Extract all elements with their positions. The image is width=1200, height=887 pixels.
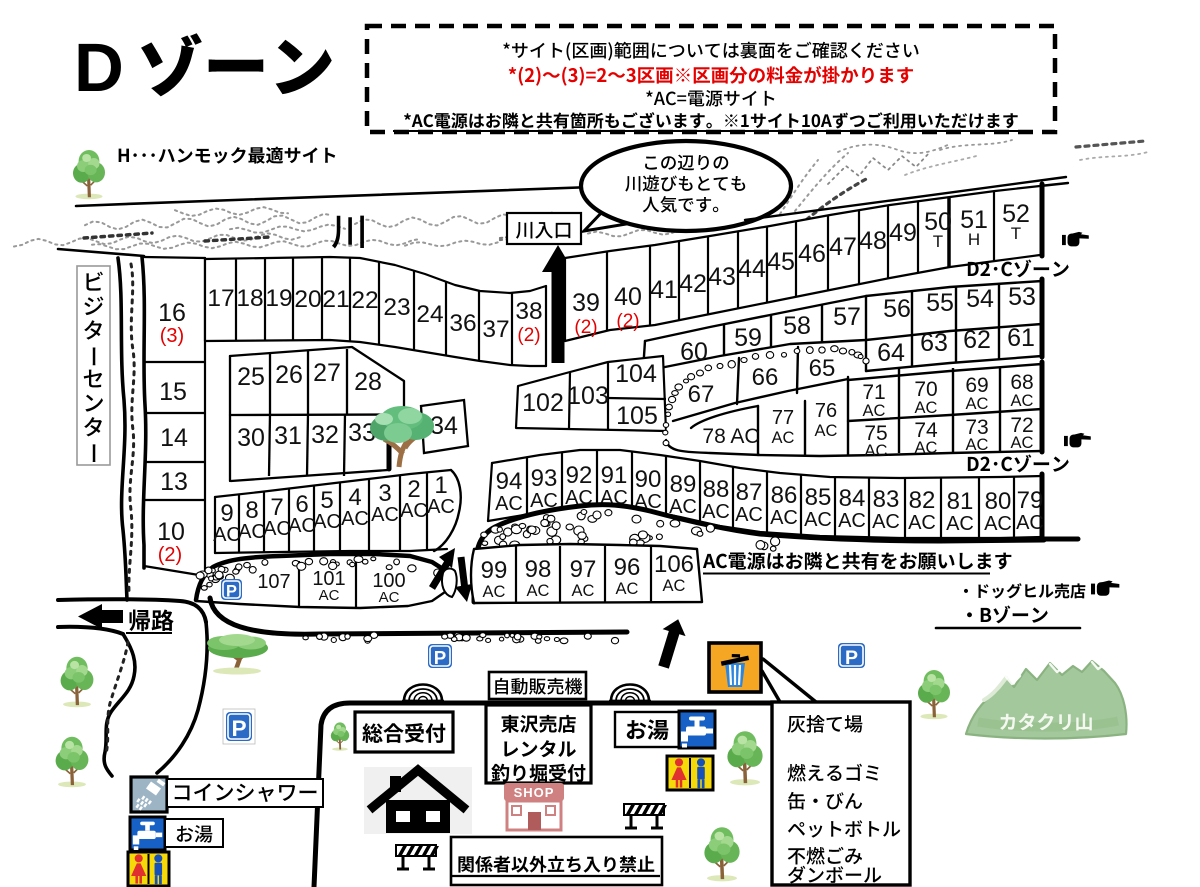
svg-text:H: H <box>968 230 980 249</box>
svg-text:86: 86 <box>771 482 798 509</box>
svg-text:1: 1 <box>434 472 447 499</box>
svg-text:AC: AC <box>319 587 340 604</box>
svg-text:62: 62 <box>963 326 991 354</box>
svg-text:15: 15 <box>159 378 187 406</box>
svg-text:66: 66 <box>752 364 779 391</box>
svg-text:19: 19 <box>265 285 292 312</box>
svg-text:SHOP: SHOP <box>514 785 555 800</box>
svg-text:25: 25 <box>237 363 265 391</box>
svg-text:AC: AC <box>838 510 866 532</box>
svg-text:AC: AC <box>1016 512 1044 534</box>
svg-text:P: P <box>231 716 246 741</box>
svg-text:21: 21 <box>322 286 349 313</box>
svg-text:70: 70 <box>914 378 937 401</box>
svg-text:64: 64 <box>877 339 905 367</box>
svg-text:58: 58 <box>783 312 811 340</box>
svg-text:107: 107 <box>257 571 290 593</box>
svg-text:(2): (2) <box>616 311 639 332</box>
svg-text:68: 68 <box>1010 371 1033 394</box>
svg-text:47: 47 <box>829 233 857 261</box>
svg-text:88: 88 <box>703 476 730 503</box>
svg-text:83: 83 <box>873 486 900 513</box>
svg-text:AC: AC <box>908 512 936 534</box>
svg-text:97: 97 <box>570 556 597 583</box>
svg-text:AC: AC <box>238 521 266 543</box>
svg-text:34: 34 <box>430 412 458 440</box>
svg-text:45: 45 <box>767 248 795 276</box>
svg-text:79: 79 <box>1017 487 1044 514</box>
svg-text:60: 60 <box>680 338 708 366</box>
svg-text:63: 63 <box>920 329 948 357</box>
svg-text:104: 104 <box>615 360 657 388</box>
svg-text:30: 30 <box>237 424 265 452</box>
svg-text:AC: AC <box>772 429 795 447</box>
svg-text:AC: AC <box>572 582 595 600</box>
svg-text:48: 48 <box>859 227 887 255</box>
svg-text:AC: AC <box>1011 434 1034 452</box>
svg-text:102: 102 <box>522 389 564 417</box>
svg-text:59: 59 <box>734 324 762 352</box>
svg-text:43: 43 <box>708 263 736 291</box>
svg-text:91: 91 <box>601 462 628 489</box>
svg-text:78 AC: 78 AC <box>702 425 759 448</box>
svg-text:90: 90 <box>635 466 662 493</box>
svg-text:32: 32 <box>311 421 339 449</box>
svg-text:93: 93 <box>531 465 558 492</box>
svg-text:(2): (2) <box>574 317 597 338</box>
svg-text:20: 20 <box>294 286 321 313</box>
svg-text:9: 9 <box>220 500 233 527</box>
svg-text:AC: AC <box>966 395 989 413</box>
svg-text:39: 39 <box>572 289 600 317</box>
svg-text:77: 77 <box>772 407 794 429</box>
svg-text:67: 67 <box>688 381 715 408</box>
svg-text:AC: AC <box>863 402 886 420</box>
svg-text:3: 3 <box>378 480 391 507</box>
svg-text:44: 44 <box>738 255 766 283</box>
svg-text:AC: AC <box>966 436 989 454</box>
svg-text:94: 94 <box>496 468 523 495</box>
svg-text:AC: AC <box>770 507 798 529</box>
svg-text:24: 24 <box>416 301 443 328</box>
svg-text:8: 8 <box>245 497 258 524</box>
svg-text:69: 69 <box>965 374 988 397</box>
svg-text:AC: AC <box>263 518 291 540</box>
svg-text:AC: AC <box>915 399 938 417</box>
svg-text:AC: AC <box>483 583 506 601</box>
svg-text:27: 27 <box>313 359 341 387</box>
svg-text:T: T <box>933 232 943 251</box>
svg-text:AC: AC <box>616 580 639 598</box>
svg-text:7: 7 <box>270 494 283 521</box>
svg-text:56: 56 <box>883 295 911 323</box>
svg-text:99: 99 <box>481 557 508 584</box>
svg-text:61: 61 <box>1007 324 1035 352</box>
svg-text:57: 57 <box>833 303 861 331</box>
svg-text:AC: AC <box>527 582 550 600</box>
svg-text:89: 89 <box>670 471 697 498</box>
svg-text:AC: AC <box>815 422 838 440</box>
svg-text:106: 106 <box>654 551 694 578</box>
svg-text:AC: AC <box>400 500 428 522</box>
svg-text:AC: AC <box>213 524 241 546</box>
svg-text:42: 42 <box>679 270 707 298</box>
svg-text:2: 2 <box>407 476 420 503</box>
svg-text:AC: AC <box>495 493 523 515</box>
svg-text:D: D <box>74 29 124 106</box>
svg-text:41: 41 <box>650 276 678 304</box>
svg-text:AC: AC <box>865 442 888 460</box>
svg-text:76: 76 <box>815 400 837 422</box>
svg-text:26: 26 <box>275 361 303 389</box>
svg-text:46: 46 <box>798 240 826 268</box>
svg-text:92: 92 <box>566 462 593 489</box>
svg-text:AC: AC <box>427 496 455 518</box>
svg-text:P: P <box>434 647 446 668</box>
svg-text:AC: AC <box>946 513 974 535</box>
svg-text:65: 65 <box>809 355 836 382</box>
svg-text:82: 82 <box>909 487 936 514</box>
svg-text:22: 22 <box>351 287 378 314</box>
svg-text:AC: AC <box>915 439 938 457</box>
svg-text:T: T <box>1011 224 1021 243</box>
svg-text:17: 17 <box>207 285 234 312</box>
svg-text:AC: AC <box>313 511 341 533</box>
svg-text:53: 53 <box>1008 283 1036 311</box>
svg-text:AC: AC <box>735 504 763 526</box>
svg-text:31: 31 <box>274 422 302 450</box>
svg-text:10: 10 <box>157 518 185 546</box>
svg-text:P: P <box>845 647 858 669</box>
svg-text:13: 13 <box>160 468 188 496</box>
svg-text:AC: AC <box>341 508 369 530</box>
svg-text:23: 23 <box>383 294 410 321</box>
svg-text:55: 55 <box>926 289 954 317</box>
svg-text:(2): (2) <box>517 325 540 346</box>
svg-text:71: 71 <box>862 381 885 404</box>
svg-text:6: 6 <box>295 491 308 518</box>
svg-text:36: 36 <box>449 310 476 337</box>
svg-text:AC: AC <box>379 589 400 606</box>
svg-text:AC: AC <box>663 577 686 595</box>
svg-text:96: 96 <box>614 554 641 581</box>
svg-text:54: 54 <box>966 285 994 313</box>
svg-text:AC: AC <box>702 501 730 523</box>
svg-text:18: 18 <box>236 285 263 312</box>
svg-text:AC: AC <box>804 509 832 531</box>
svg-text:80: 80 <box>985 488 1012 515</box>
svg-text:49: 49 <box>889 219 917 247</box>
svg-text:(2): (2) <box>158 544 182 566</box>
svg-text:38: 38 <box>515 298 542 325</box>
svg-text:16: 16 <box>158 299 186 327</box>
svg-text:14: 14 <box>160 424 188 452</box>
svg-text:(3): (3) <box>160 325 184 347</box>
svg-text:4: 4 <box>348 484 361 511</box>
svg-text:AC: AC <box>371 504 399 526</box>
svg-text:5: 5 <box>320 487 333 514</box>
svg-text:AC: AC <box>872 511 900 533</box>
svg-text:103: 103 <box>567 382 609 410</box>
svg-text:81: 81 <box>947 488 974 515</box>
svg-text:105: 105 <box>616 402 658 430</box>
svg-text:98: 98 <box>525 556 552 583</box>
svg-text:84: 84 <box>839 485 866 512</box>
svg-text:40: 40 <box>614 283 642 311</box>
svg-text:37: 37 <box>482 316 509 343</box>
svg-text:87: 87 <box>736 479 763 506</box>
svg-text:AC: AC <box>1011 392 1034 410</box>
svg-text:AC: AC <box>984 513 1012 535</box>
svg-text:85: 85 <box>805 484 832 511</box>
svg-text:P: P <box>226 582 237 600</box>
svg-text:AC: AC <box>288 515 316 537</box>
svg-text:28: 28 <box>354 368 382 396</box>
